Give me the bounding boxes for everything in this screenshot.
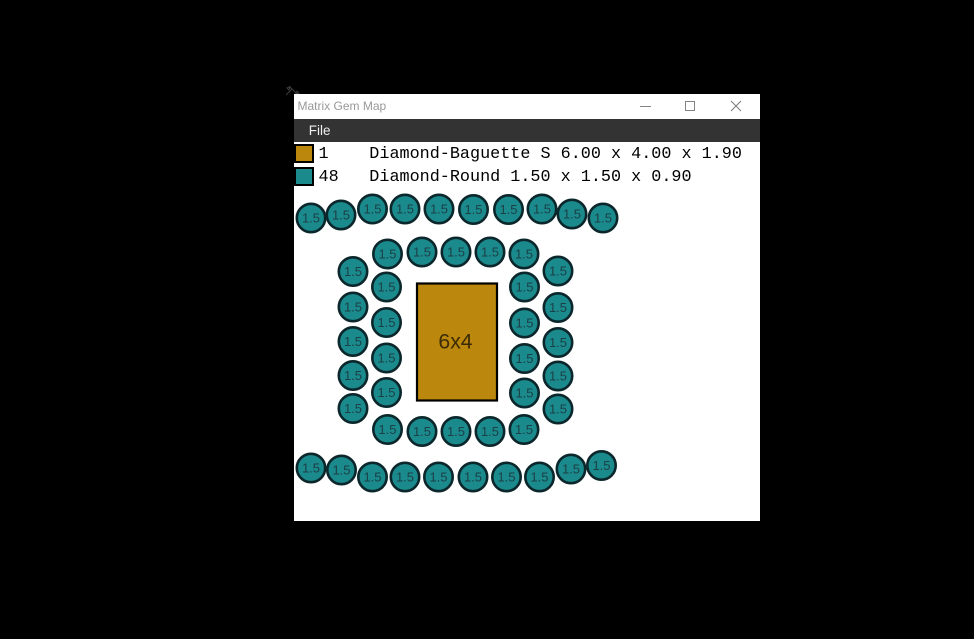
svg-text:1.5: 1.5 bbox=[447, 424, 465, 439]
svg-text:1.5: 1.5 bbox=[515, 422, 533, 437]
svg-text:1.5: 1.5 bbox=[481, 245, 499, 260]
svg-text:1.5: 1.5 bbox=[332, 463, 350, 478]
svg-text:1.5: 1.5 bbox=[344, 368, 362, 383]
svg-text:1.5: 1.5 bbox=[549, 300, 567, 315]
svg-text:1.5: 1.5 bbox=[533, 202, 551, 217]
svg-text:1.5: 1.5 bbox=[447, 245, 465, 260]
svg-text:1.5: 1.5 bbox=[481, 424, 499, 439]
svg-text:1.5: 1.5 bbox=[464, 202, 482, 217]
svg-text:1.5: 1.5 bbox=[377, 351, 395, 366]
svg-text:1.5: 1.5 bbox=[515, 351, 533, 366]
svg-text:1.5: 1.5 bbox=[594, 211, 612, 226]
svg-text:1.5: 1.5 bbox=[344, 334, 362, 349]
svg-text:6x4: 6x4 bbox=[438, 331, 472, 354]
svg-text:1.5: 1.5 bbox=[378, 422, 396, 437]
svg-text:1.5: 1.5 bbox=[530, 470, 548, 485]
svg-text:1.5: 1.5 bbox=[363, 470, 381, 485]
svg-text:1.5: 1.5 bbox=[549, 335, 567, 350]
svg-text:1.5: 1.5 bbox=[413, 245, 431, 260]
svg-text:1.5: 1.5 bbox=[430, 202, 448, 217]
svg-text:1.5: 1.5 bbox=[549, 369, 567, 384]
svg-text:1.5: 1.5 bbox=[302, 461, 320, 476]
svg-text:1.5: 1.5 bbox=[302, 211, 320, 226]
svg-text:1.5: 1.5 bbox=[563, 207, 581, 222]
svg-text:1.5: 1.5 bbox=[515, 247, 533, 262]
svg-text:1.5: 1.5 bbox=[377, 280, 395, 295]
svg-text:1.5: 1.5 bbox=[332, 208, 350, 223]
svg-text:1.5: 1.5 bbox=[497, 470, 515, 485]
svg-text:1.5: 1.5 bbox=[344, 401, 362, 416]
svg-text:1.5: 1.5 bbox=[515, 386, 533, 401]
svg-text:1.5: 1.5 bbox=[413, 424, 431, 439]
svg-text:1.5: 1.5 bbox=[464, 470, 482, 485]
svg-text:1.5: 1.5 bbox=[378, 247, 396, 262]
svg-text:1.5: 1.5 bbox=[363, 202, 381, 217]
svg-text:1.5: 1.5 bbox=[396, 470, 414, 485]
svg-text:1.5: 1.5 bbox=[592, 458, 610, 473]
svg-text:1.5: 1.5 bbox=[429, 470, 447, 485]
svg-text:1.5: 1.5 bbox=[515, 316, 533, 331]
svg-text:1.5: 1.5 bbox=[396, 202, 414, 217]
svg-text:1.5: 1.5 bbox=[377, 385, 395, 400]
svg-text:1.5: 1.5 bbox=[344, 264, 362, 279]
svg-text:1.5: 1.5 bbox=[515, 280, 533, 295]
svg-text:1.5: 1.5 bbox=[499, 202, 517, 217]
svg-text:1.5: 1.5 bbox=[377, 315, 395, 330]
svg-text:1.5: 1.5 bbox=[549, 402, 567, 417]
svg-text:1.5: 1.5 bbox=[344, 300, 362, 315]
svg-text:1.5: 1.5 bbox=[549, 264, 567, 279]
svg-text:1.5: 1.5 bbox=[562, 462, 580, 477]
